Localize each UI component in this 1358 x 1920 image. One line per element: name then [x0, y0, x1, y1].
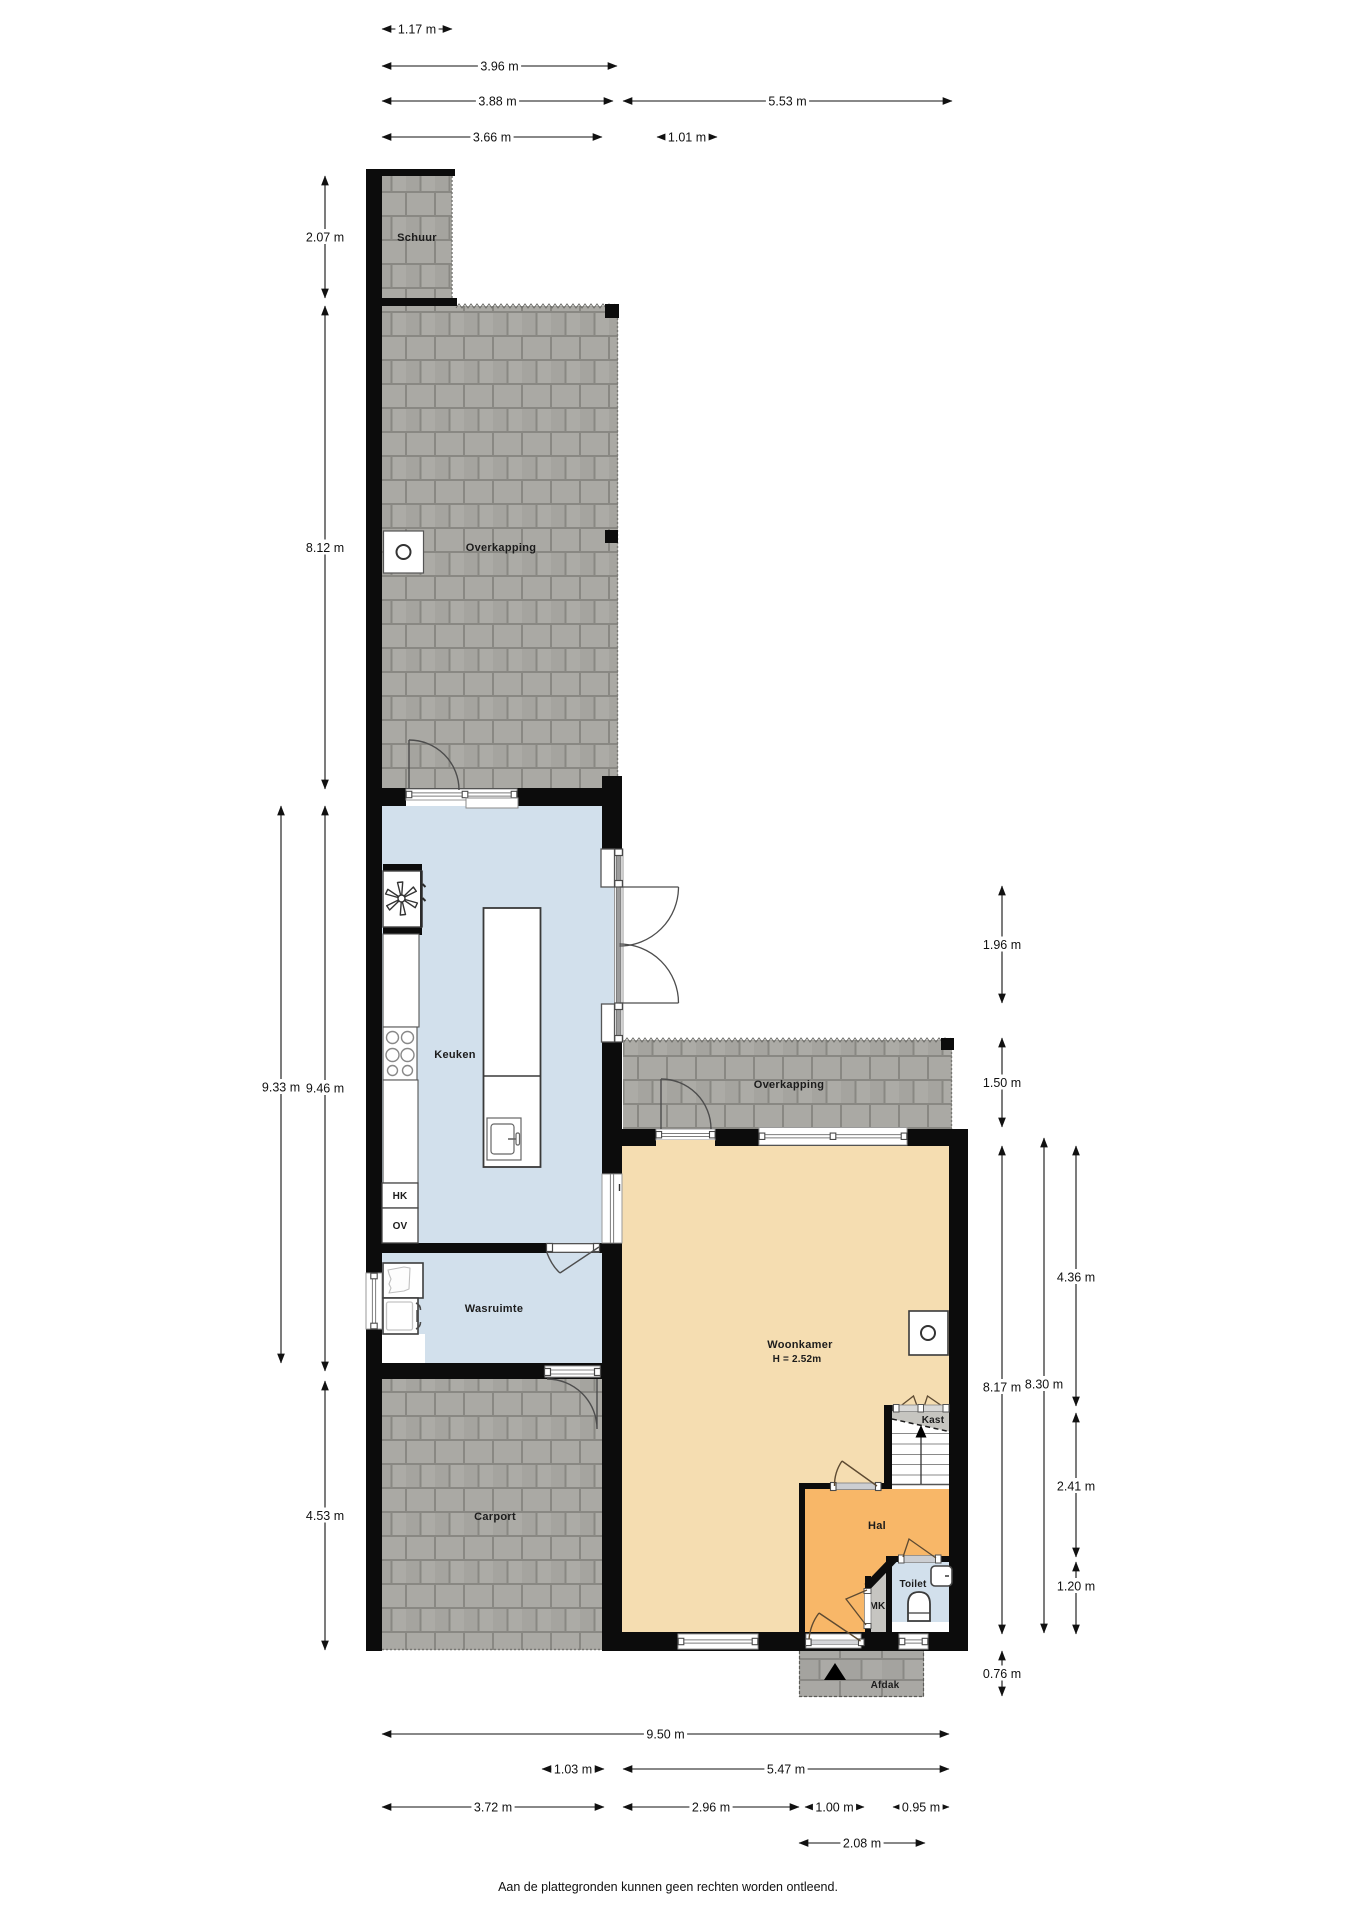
svg-text:2.07 m: 2.07 m [306, 231, 344, 245]
svg-text:1.96 m: 1.96 m [983, 938, 1021, 952]
svg-text:Woonkamer: Woonkamer [767, 1339, 833, 1351]
svg-text:Afdak: Afdak [871, 1680, 900, 1691]
svg-text:H = 2.52m: H = 2.52m [773, 1354, 822, 1365]
svg-text:1.20 m: 1.20 m [1057, 1580, 1095, 1594]
svg-text:MK: MK [870, 1601, 887, 1612]
svg-text:Overkapping: Overkapping [754, 1079, 825, 1091]
svg-text:4.53 m: 4.53 m [306, 1509, 344, 1523]
svg-text:Toilet: Toilet [899, 1579, 927, 1590]
svg-text:3.96 m: 3.96 m [480, 60, 518, 74]
svg-text:8.30 m: 8.30 m [1025, 1378, 1063, 1392]
svg-text:OV: OV [393, 1221, 408, 1232]
svg-text:8.12 m: 8.12 m [306, 541, 344, 555]
svg-text:3.72 m: 3.72 m [474, 1801, 512, 1815]
svg-text:HK: HK [393, 1191, 408, 1202]
svg-text:5.53 m: 5.53 m [768, 95, 806, 109]
svg-text:1.01 m: 1.01 m [668, 131, 706, 145]
svg-text:9.50 m: 9.50 m [646, 1728, 684, 1742]
svg-text:3.66 m: 3.66 m [473, 131, 511, 145]
svg-text:Keuken: Keuken [434, 1049, 476, 1061]
svg-text:1.03 m: 1.03 m [554, 1763, 592, 1777]
svg-text:2.96 m: 2.96 m [692, 1801, 730, 1815]
svg-text:1.00 m: 1.00 m [815, 1801, 853, 1815]
svg-text:5.47 m: 5.47 m [767, 1763, 805, 1777]
svg-text:Schuur: Schuur [397, 232, 437, 244]
svg-text:Kast: Kast [922, 1415, 945, 1426]
svg-text:Aan de plattegronden kunnen ge: Aan de plattegronden kunnen geen rechten… [498, 1880, 838, 1894]
svg-text:Carport: Carport [474, 1511, 516, 1523]
svg-text:9.33 m: 9.33 m [262, 1081, 300, 1095]
svg-text:Hal: Hal [868, 1520, 886, 1532]
svg-text:0.95 m: 0.95 m [902, 1801, 940, 1815]
svg-text:2.08 m: 2.08 m [843, 1837, 881, 1851]
svg-text:3.88 m: 3.88 m [478, 95, 516, 109]
svg-text:Overkapping: Overkapping [466, 542, 537, 554]
svg-text:1.17 m: 1.17 m [398, 23, 436, 37]
svg-text:4.36 m: 4.36 m [1057, 1271, 1095, 1285]
svg-text:2.41 m: 2.41 m [1057, 1480, 1095, 1494]
svg-text:9.46 m: 9.46 m [306, 1082, 344, 1096]
svg-text:8.17 m: 8.17 m [983, 1381, 1021, 1395]
svg-text:Wasruimte: Wasruimte [465, 1303, 524, 1315]
svg-text:0.76 m: 0.76 m [983, 1667, 1021, 1681]
svg-text:1.50 m: 1.50 m [983, 1076, 1021, 1090]
